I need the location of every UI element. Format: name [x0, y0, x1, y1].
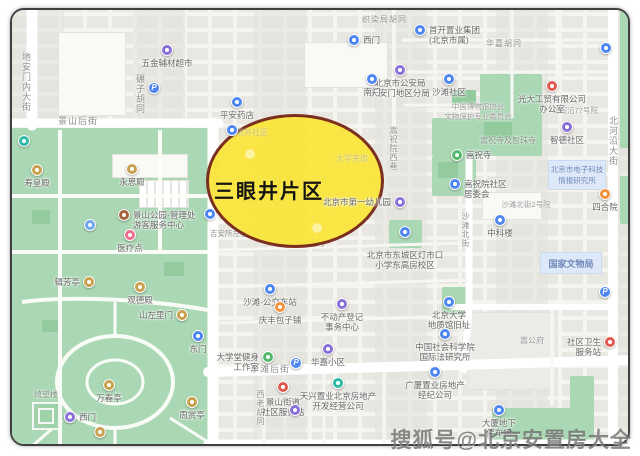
poi-label: 山左里门	[139, 310, 173, 320]
poi-label: 沙滩-公交车站	[243, 297, 297, 307]
street-label-nianzi: 碾子胡同	[134, 74, 147, 114]
poi-label: 天兴置业北京房地产 开发经营公司	[300, 391, 377, 411]
gate-marker-icon	[348, 34, 360, 46]
street-label-shatanbei: 沙滩北街	[460, 212, 471, 248]
poi-label: 永思殿	[119, 177, 145, 187]
poi-label: 沙滩社区	[432, 87, 466, 97]
institute-block: 北京市电子科技 情报研究所	[548, 160, 606, 190]
restroom-icon	[84, 219, 96, 231]
watermark: 搜狐号@北京安置房大全	[391, 424, 632, 454]
poi-label: 首开置业集团 (北京市属)	[429, 25, 480, 45]
store-marker-icon	[161, 44, 173, 56]
poi-marker-icon	[289, 404, 301, 416]
pavilion-marker-icon	[103, 379, 115, 391]
area-label-shatan2yuan: 沙滩北街2号院	[494, 200, 558, 210]
poi-label: 寿皇殿	[24, 178, 50, 188]
estate-marker-icon	[322, 343, 334, 355]
poi-label: 广厦置业房地产 经纪公司	[405, 380, 465, 400]
area-label-museum-assoc: 中国博物馆协会 文物保护专业委员会	[438, 102, 518, 122]
kindergarten-marker-icon	[394, 196, 406, 208]
poi-label: 华嘉小区	[311, 357, 345, 367]
poi-label: 庆丰包子铺	[259, 315, 302, 325]
agency-marker-icon	[429, 366, 441, 378]
community-marker-icon	[449, 178, 461, 190]
parking-icon: P	[599, 286, 611, 298]
poi-label: 东门	[189, 344, 206, 354]
poi-label: 五金辅材超市	[141, 58, 192, 68]
heritage-admin-block: 国家文物局	[540, 252, 602, 274]
poi-label: 四合院	[592, 202, 618, 212]
poi-label: 大学堂健身 工作室	[216, 352, 259, 372]
gate-marker-icon	[64, 411, 76, 423]
community-marker-icon	[561, 121, 573, 133]
pavilion-marker-icon	[94, 426, 106, 438]
courtyard-marker-icon	[599, 188, 611, 200]
poi-label: 嵩祝院社区 居委会	[464, 179, 507, 199]
poi-label: 北京大学 地质馆旧址	[428, 310, 471, 330]
pharmacy-marker-icon	[231, 96, 243, 108]
poi-label: 南门	[363, 87, 380, 97]
poi-label: 嵩祝寺	[466, 150, 492, 160]
poi-label: 智德社区	[550, 135, 584, 145]
building-marker-icon	[494, 214, 506, 226]
institute-marker-icon	[439, 328, 451, 340]
service-marker-icon	[277, 381, 289, 393]
poi-label: 西门	[79, 412, 96, 422]
institute-label: 北京市电子科技 情报研究所	[551, 164, 604, 186]
poi-label: 医疗点	[117, 243, 143, 253]
landmark-marker-icon	[443, 296, 455, 308]
police-marker-icon	[394, 64, 406, 76]
parking-marker-icon	[493, 404, 505, 416]
parking-icon: P	[290, 357, 302, 369]
temple-marker-icon	[451, 149, 463, 161]
map-frame: 北京市电子科技 情报研究所 国家文物局 地安门内大街 景山后街 碾子胡同 景山东…	[10, 8, 630, 446]
company-marker-icon	[414, 24, 426, 36]
poi-label: 景山公园-管理处 游客服务中心	[133, 210, 195, 230]
bus-stop-icon	[204, 208, 216, 220]
clinic-marker-icon	[604, 336, 616, 348]
gate-marker-icon	[18, 135, 30, 147]
gate-marker-icon	[176, 309, 188, 321]
bus-stop-icon	[264, 283, 276, 295]
school-marker-icon	[399, 226, 411, 238]
poi-label: 社区卫生 服务站	[567, 337, 601, 357]
gym-marker-icon	[262, 351, 274, 363]
street-label-dianmennei: 地安门内大街	[20, 52, 33, 112]
area-label-temples: 嵩祝寺及智珠寺	[472, 136, 544, 146]
gate-marker-icon	[366, 73, 378, 85]
pavilion-marker-icon	[83, 276, 95, 288]
poi-label: 西门	[363, 35, 380, 45]
street-label-zhiranju: 织染局胡同	[362, 14, 407, 25]
hall-marker-icon	[126, 163, 138, 175]
registry-marker-icon	[336, 298, 348, 310]
poi-label: 中科楼	[487, 228, 513, 238]
map-canvas[interactable]: 北京市电子科技 情报研究所 国家文物局 地安门内大街 景山后街 碾子胡同 景山东…	[12, 10, 628, 444]
area-label-songgongfu: 嵩公府	[512, 336, 552, 346]
bus-stop-icon	[226, 124, 238, 136]
qiwanglou-structure	[32, 402, 60, 430]
pavilion-marker-icon	[186, 396, 198, 408]
area-label-faint-daxuejiadao: 大学夹道	[330, 154, 374, 164]
gate-marker-icon	[192, 330, 204, 342]
medical-marker-icon	[124, 229, 136, 241]
office-marker-icon	[546, 80, 558, 92]
hall-marker-icon	[31, 164, 43, 176]
poi-label: 万春亭	[96, 393, 122, 403]
area-label-qiwanglou: 绮望楼	[26, 390, 66, 400]
community-marker-icon	[443, 73, 455, 85]
street-label-songzhuyuanxi: 嵩祝院西巷	[388, 126, 399, 171]
poi-label: 辑芳亭	[54, 277, 80, 287]
street-label-jingshanhou: 景山后街	[58, 114, 98, 127]
poi-label: 平安药店	[220, 110, 254, 120]
poi-label: 观德殿	[127, 295, 153, 305]
poi-marker-icon	[600, 42, 612, 54]
poi-label: 光大工贸有限公司 办公室	[518, 94, 586, 114]
poi-label: 北京市第一幼儿园	[323, 197, 391, 207]
hall-marker-icon	[134, 281, 146, 293]
street-label-huajia: 华嘉胡同	[486, 38, 522, 49]
faded-poi-dot	[312, 223, 322, 233]
heritage-admin-label: 国家文物局	[548, 257, 593, 270]
poi-label: 周赏亭	[179, 410, 205, 420]
street-label-beiheyan: 北河沿大街	[607, 116, 620, 166]
parking-icon: P	[148, 82, 160, 94]
company-marker-icon	[332, 377, 344, 389]
highlight-region-label: 三眼井片区	[214, 175, 324, 204]
visitor-center-icon	[118, 209, 130, 221]
poi-label: 中国社会科学院 国际法研究所	[415, 342, 475, 362]
restaurant-marker-icon	[274, 301, 286, 313]
poi-label: 不动产登记 事务中心	[321, 312, 364, 332]
poi-label: 北京市东城区灯市口 小学东高房校区	[367, 250, 444, 270]
faded-poi-dot	[245, 149, 255, 159]
